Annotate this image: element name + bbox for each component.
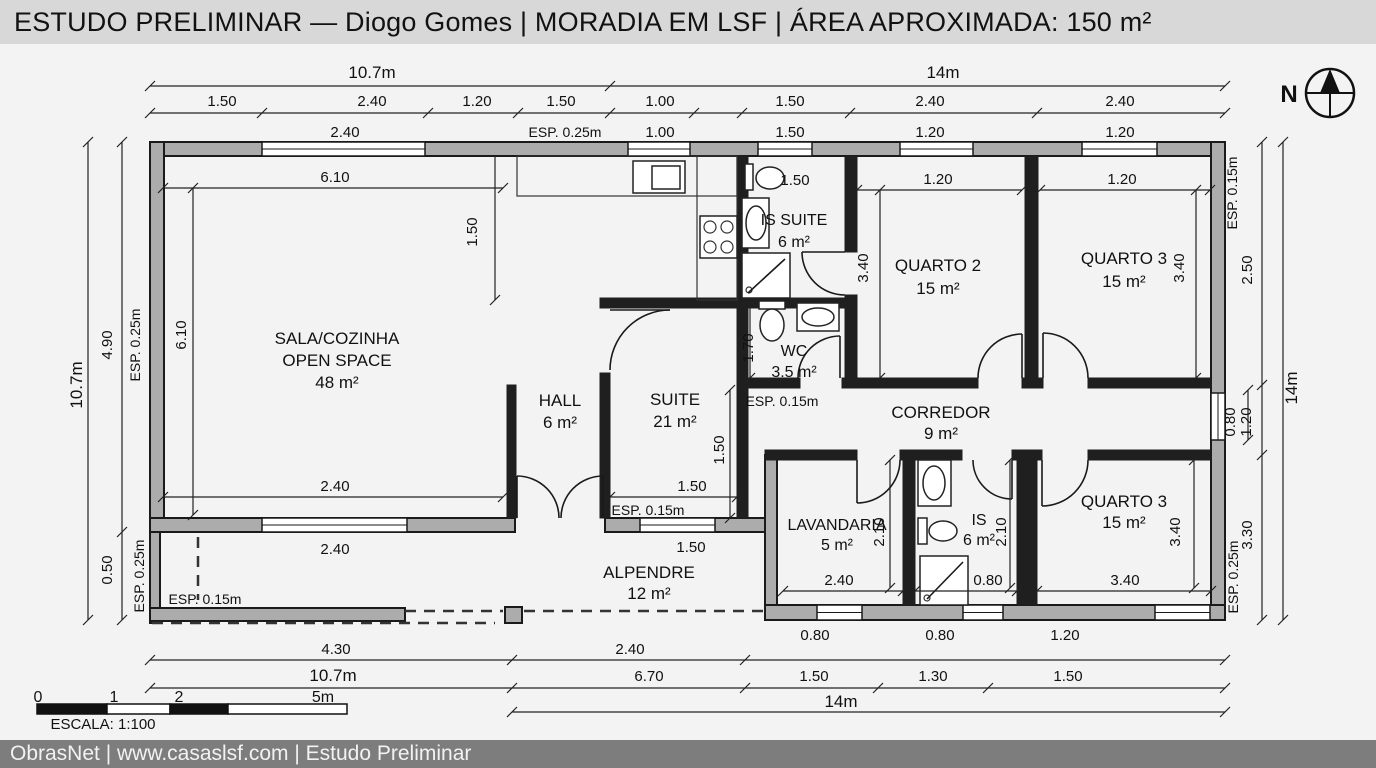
room-label: IS SUITE6 m² xyxy=(761,212,828,251)
dimension-label: 2.10 xyxy=(993,517,1010,546)
exterior-wall xyxy=(505,607,522,623)
scale-bar-segment xyxy=(37,704,107,714)
dimension-label: 2.40 xyxy=(915,93,944,110)
dimension-label: 1.20 xyxy=(1238,407,1255,436)
dimension-label: 0.80 xyxy=(1222,407,1239,436)
dimension-label: 1.70 xyxy=(740,333,757,362)
dimension-label: 1.50 xyxy=(775,124,804,141)
dimension-label: 0.80 xyxy=(973,572,1002,589)
dimension-label: 6.10 xyxy=(320,169,349,186)
exterior-wall xyxy=(150,142,164,532)
dimension-label: 14m xyxy=(926,63,959,82)
dimension-label: ESP. 0.15m xyxy=(169,591,242,607)
dimension-label: 4.30 xyxy=(321,641,350,658)
exterior-wall xyxy=(765,455,777,605)
door-swing-arc xyxy=(517,476,559,518)
dimension-label: 1.50 xyxy=(780,172,809,189)
dimension-label: ESCALA: 1:100 xyxy=(50,716,155,733)
page-title: ESTUDO PRELIMINAR — Diogo Gomes | MORADI… xyxy=(14,7,1152,38)
dimension-label: 1.50 xyxy=(676,539,705,556)
room-label: HALL6 m² xyxy=(539,391,582,432)
dimension-label: 2.40 xyxy=(357,93,386,110)
dimension-label: 1.50 xyxy=(1053,668,1082,685)
dimension-label: 2.40 xyxy=(824,572,853,589)
dimension-label: 14m xyxy=(824,692,857,711)
dimension-label: 0.50 xyxy=(99,555,116,584)
dimension-label: 2.40 xyxy=(320,478,349,495)
title-bar: ESTUDO PRELIMINAR — Diogo Gomes | MORADI… xyxy=(0,0,1376,44)
interior-wall xyxy=(765,450,857,460)
kitchen-counter xyxy=(517,156,737,196)
dimension-label: 1.20 xyxy=(923,171,952,188)
room-label: QUARTO 315 m² xyxy=(1081,492,1167,532)
dimension-label: 1.50 xyxy=(677,478,706,495)
fixture-bowl xyxy=(760,309,784,341)
floor-plan-drawing: 10.7m14m1.502.401.201.501.001.502.402.40… xyxy=(0,0,1376,768)
dimension-label: 10.7m xyxy=(348,63,395,82)
dimension-label: 0.80 xyxy=(800,627,829,644)
dimension-label: ESP. 0.25m xyxy=(529,124,602,140)
scale-bar-segment xyxy=(228,704,347,714)
door-swing-arc xyxy=(802,252,845,295)
interior-wall xyxy=(903,455,915,605)
dimension-label: 3.40 xyxy=(1167,517,1184,546)
dimension-label: ESP. 0.25m xyxy=(131,540,147,613)
dimension-label: 3.40 xyxy=(1171,253,1188,282)
dimension-label: 2.40 xyxy=(615,641,644,658)
room-label: QUARTO 215 m² xyxy=(895,256,981,298)
dimension-label: 0.80 xyxy=(925,627,954,644)
dimension-label: 3.40 xyxy=(855,253,872,282)
dimension-label: 1.20 xyxy=(462,93,491,110)
interior-wall xyxy=(842,378,857,388)
footer-bar: ObrasNet | www.casaslsf.com | Estudo Pre… xyxy=(0,740,1376,768)
fixture-bowl xyxy=(929,521,957,541)
room-label: SALA/COZINHAOPEN SPACE48 m² xyxy=(275,329,400,392)
room-label: QUARTO 315 m² xyxy=(1081,249,1167,291)
scale-bar-segment xyxy=(107,704,170,714)
exterior-wall xyxy=(150,608,405,621)
dimension-label: 1.20 xyxy=(1050,627,1079,644)
dimension-label: 1.50 xyxy=(775,93,804,110)
exterior-wall xyxy=(1211,142,1225,620)
dimension-label: 1.50 xyxy=(799,668,828,685)
interior-wall xyxy=(507,385,516,518)
dimension-label: 4.90 xyxy=(99,330,116,359)
dimension-label: 1.00 xyxy=(645,93,674,110)
dimension-label: 1.20 xyxy=(1107,171,1136,188)
fixture-box xyxy=(652,166,680,189)
dimension-label: 10.7m xyxy=(67,361,86,408)
dimension-label: 3.40 xyxy=(1110,572,1139,589)
footer-text: ObrasNet | www.casaslsf.com | Estudo Pre… xyxy=(10,742,471,766)
dimension-label: 1.50 xyxy=(207,93,236,110)
room-label: CORREDOR9 m² xyxy=(891,403,990,443)
dimension-label: 1.00 xyxy=(645,124,674,141)
door-swing-arc xyxy=(857,460,900,503)
fixture-box xyxy=(745,164,753,190)
dimension-label: 10.7m xyxy=(309,666,356,685)
north-arrow-needle xyxy=(1320,69,1340,93)
room-label: ALPENDRE12 m² xyxy=(603,563,695,603)
room-label: IS6 m² xyxy=(963,512,996,549)
dimension-label: 6.70 xyxy=(634,668,663,685)
dimension-label: 14m xyxy=(1282,371,1301,404)
interior-wall xyxy=(600,373,610,518)
door-swing-arc xyxy=(561,476,603,518)
dimension-label: ESP. 0.25m xyxy=(127,309,143,382)
dimension-label: ESP. 0.15m xyxy=(746,393,819,409)
fixture-box xyxy=(918,518,927,544)
dimension-label: 1.30 xyxy=(918,668,947,685)
dimension-label: ESP. 0.15m xyxy=(612,502,685,518)
dimension-label: ESP. 0.25m xyxy=(1225,541,1241,614)
dimension-label: 6.10 xyxy=(173,320,190,349)
interior-wall xyxy=(845,295,857,385)
interior-wall xyxy=(1088,378,1211,388)
fixture-box xyxy=(759,301,785,309)
fixture-bowl xyxy=(923,466,945,500)
floor-plan-sheet: 10.7m14m1.502.401.201.501.001.502.402.40… xyxy=(0,0,1376,768)
dimension-label: N xyxy=(1280,81,1297,108)
interior-wall xyxy=(1017,455,1037,605)
interior-wall xyxy=(1022,378,1043,388)
scale-bar-segment xyxy=(170,704,228,714)
dimension-label: ESP. 0.15m xyxy=(1224,157,1240,230)
interior-wall xyxy=(1025,156,1038,378)
dimension-label: 1.50 xyxy=(711,435,728,464)
dimension-label: 2.40 xyxy=(330,124,359,141)
door-swing-arc xyxy=(610,310,670,370)
dimension-label: 1.20 xyxy=(1105,124,1134,141)
interior-wall xyxy=(1088,450,1211,460)
dimension-label: 3.30 xyxy=(1239,520,1256,549)
dimension-label: 1.20 xyxy=(915,124,944,141)
dimension-label: 2.40 xyxy=(320,541,349,558)
door-swing-arc xyxy=(973,460,1012,499)
dimension-label: 2.40 xyxy=(1105,93,1134,110)
dimension-label: 2.50 xyxy=(1239,255,1256,284)
dimension-label: 1.50 xyxy=(546,93,575,110)
fixture-bowl xyxy=(802,308,834,326)
dimension-label: 1.50 xyxy=(464,217,481,246)
door-swing-arc xyxy=(978,334,1022,378)
room-label: SUITE21 m² xyxy=(650,390,700,431)
interior-wall xyxy=(845,156,857,252)
door-swing-arc xyxy=(1043,333,1088,378)
